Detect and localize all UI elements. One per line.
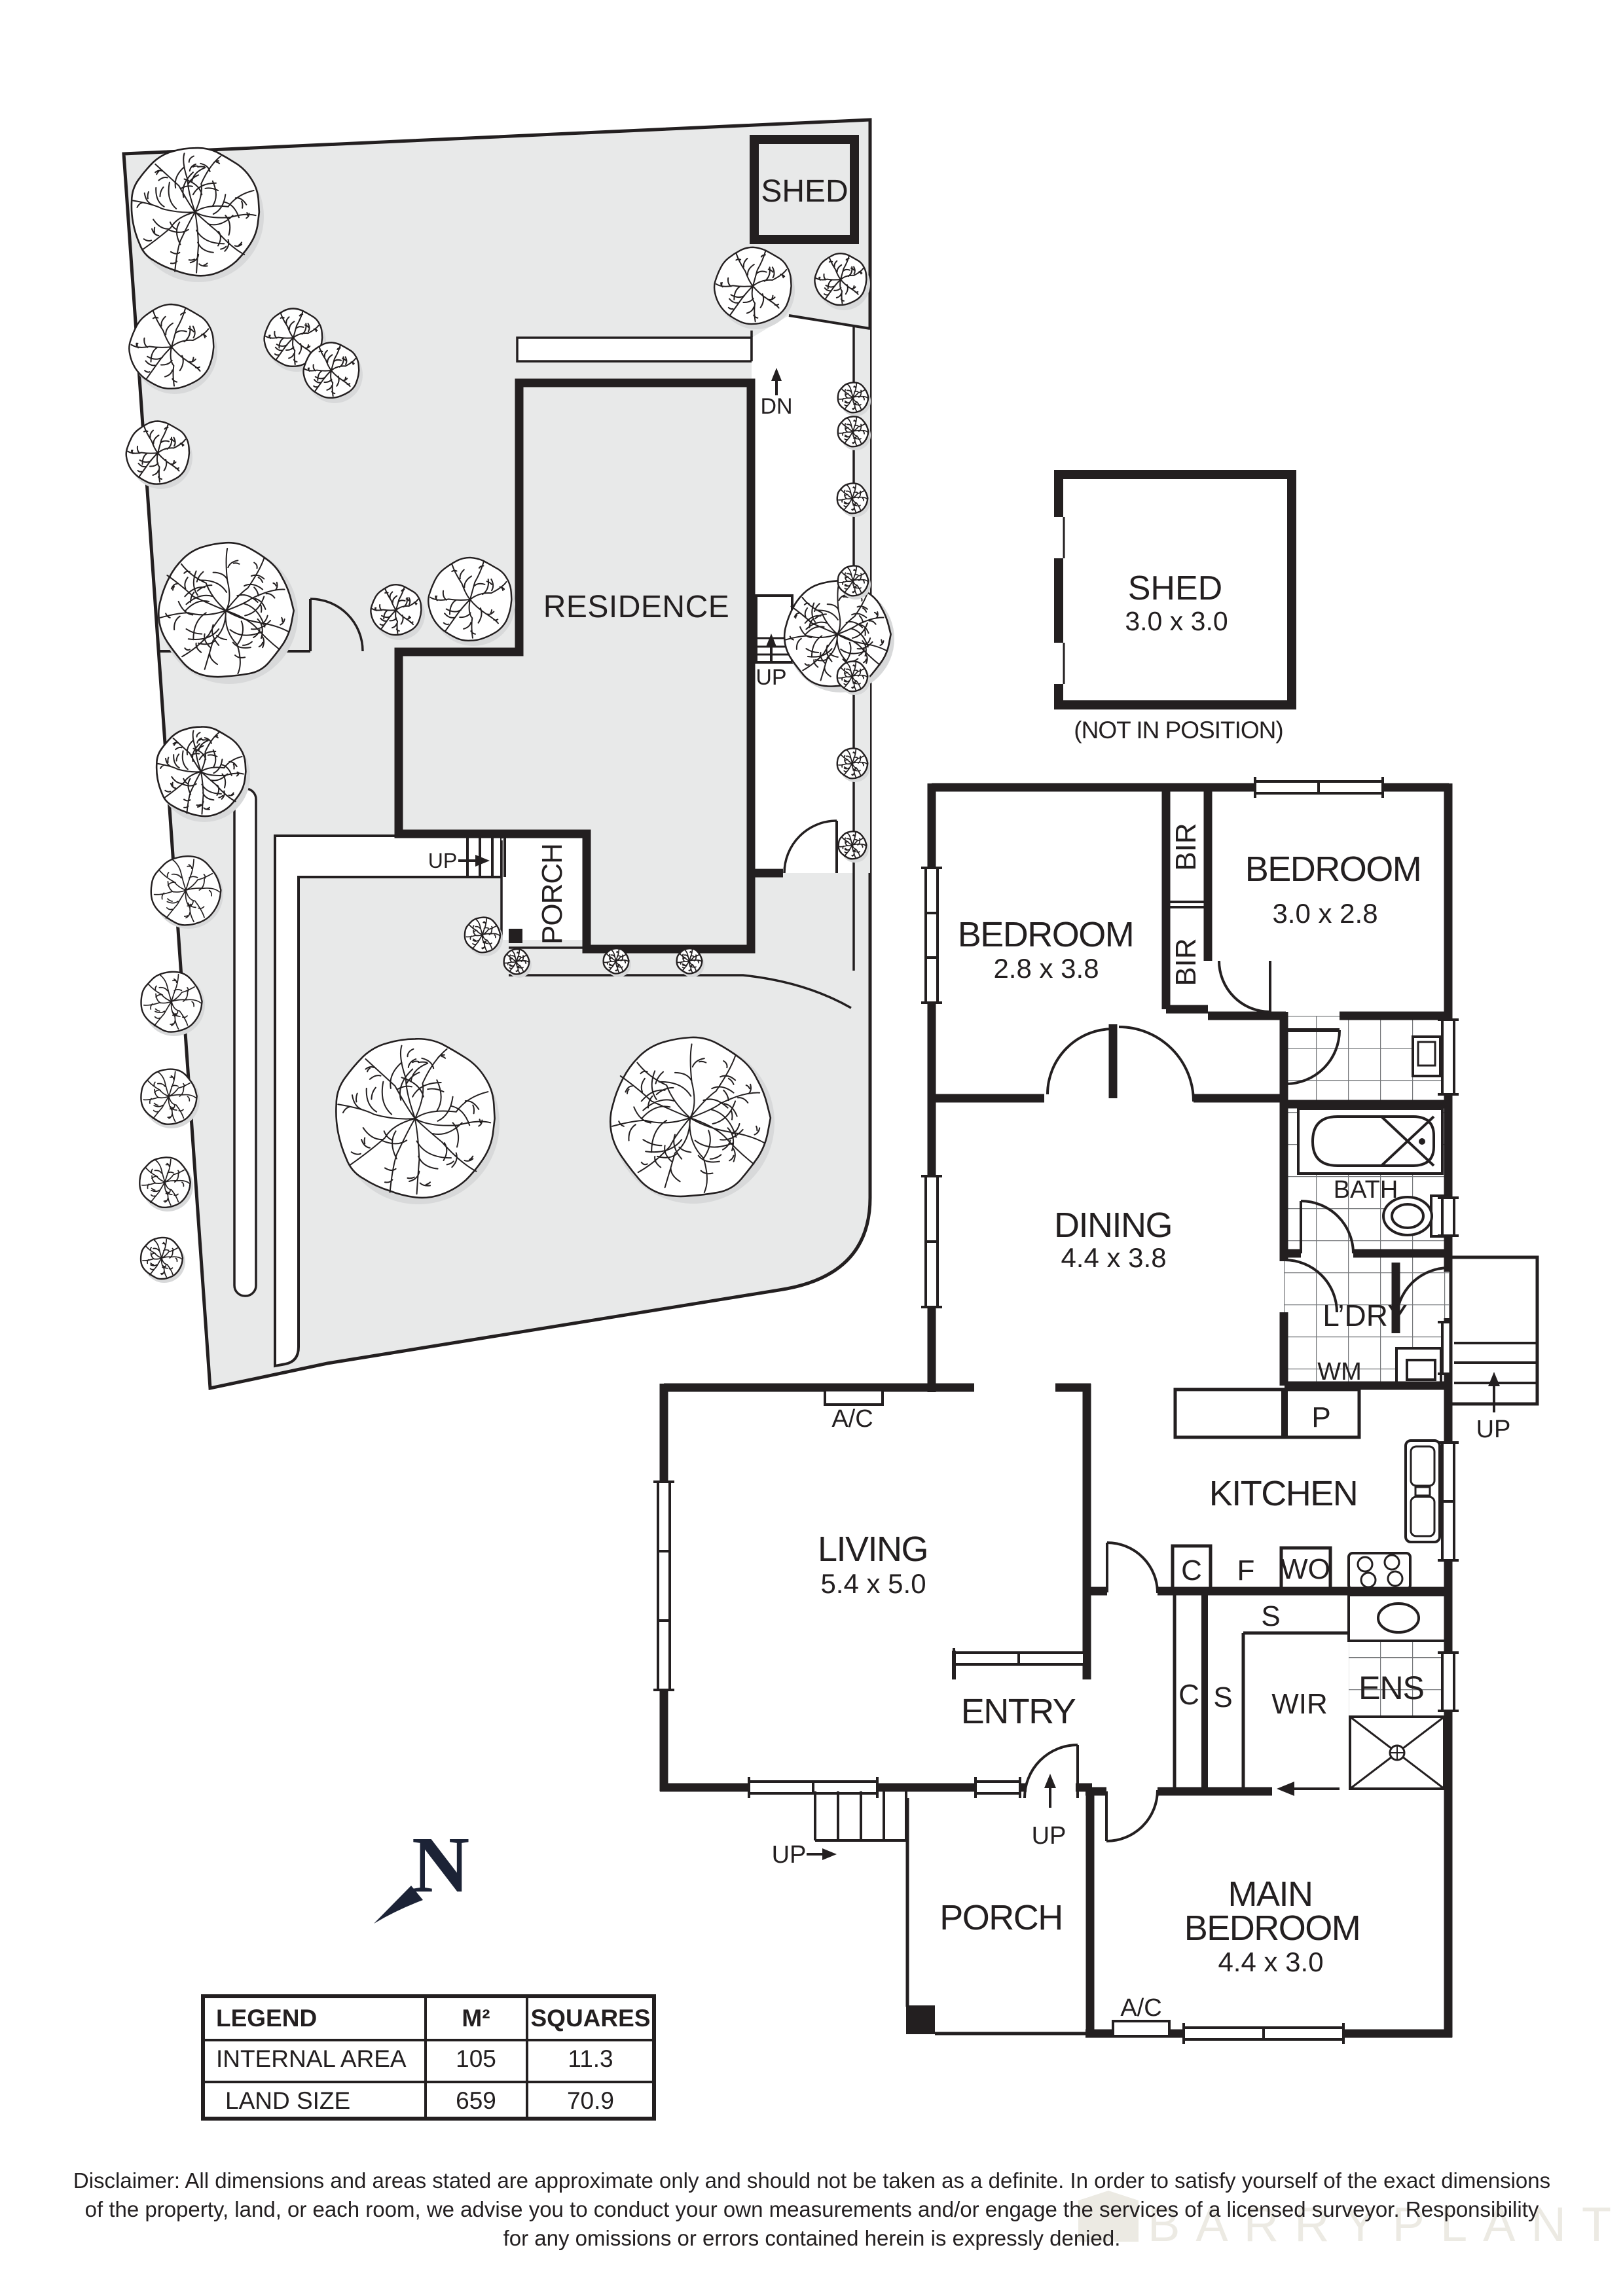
svg-text:BATH: BATH <box>1334 1176 1398 1204</box>
svg-text:P: P <box>1311 1401 1330 1433</box>
svg-text:M²: M² <box>462 2005 490 2032</box>
svg-text:BIR: BIR <box>1170 938 1202 986</box>
svg-text:UP: UP <box>428 849 457 872</box>
svg-text:A/C: A/C <box>831 1405 873 1433</box>
svg-text:3.0 x 2.8: 3.0 x 2.8 <box>1272 898 1377 929</box>
svg-text:UP: UP <box>1032 1822 1067 1850</box>
svg-text:for any omissions or errors co: for any omissions or errors contained he… <box>503 2226 1121 2250</box>
svg-text:4.4 x 3.8: 4.4 x 3.8 <box>1061 1242 1166 1273</box>
svg-text:SQUARES: SQUARES <box>531 2005 651 2032</box>
svg-text:3.0 x 3.0: 3.0 x 3.0 <box>1125 606 1228 636</box>
svg-text:N: N <box>412 1821 469 1909</box>
svg-text:L’DRY: L’DRY <box>1322 1299 1408 1333</box>
svg-text:70.9: 70.9 <box>567 2087 614 2114</box>
svg-text:105: 105 <box>456 2045 496 2072</box>
svg-text:WM: WM <box>1317 1358 1362 1386</box>
svg-text:ENS: ENS <box>1359 1670 1424 1706</box>
svg-text:RESIDENCE: RESIDENCE <box>543 590 730 624</box>
svg-text:INTERNAL AREA: INTERNAL AREA <box>216 2045 407 2072</box>
svg-text:F: F <box>1237 1554 1255 1587</box>
svg-text:BEDROOM: BEDROOM <box>1184 1909 1360 1948</box>
svg-text:MAIN: MAIN <box>1228 1874 1313 1914</box>
svg-text:LIVING: LIVING <box>818 1530 928 1569</box>
svg-text:WO: WO <box>1281 1553 1330 1585</box>
svg-text:LEGEND: LEGEND <box>216 2005 317 2032</box>
svg-text:UP: UP <box>772 1841 807 1869</box>
svg-text:BEDROOM: BEDROOM <box>1245 850 1421 889</box>
svg-text:4.4 x 3.0: 4.4 x 3.0 <box>1218 1946 1323 1977</box>
svg-text:KITCHEN: KITCHEN <box>1209 1474 1358 1513</box>
svg-text:659: 659 <box>456 2087 496 2114</box>
svg-text:S: S <box>1213 1681 1232 1713</box>
svg-text:C: C <box>1181 1554 1202 1587</box>
svg-text:UP: UP <box>1476 1416 1511 1443</box>
svg-text:SHED: SHED <box>761 174 848 209</box>
svg-text:UP: UP <box>756 665 786 690</box>
svg-text:DN: DN <box>760 394 792 419</box>
svg-text:PORCH: PORCH <box>939 1898 1063 1937</box>
svg-text:BEDROOM: BEDROOM <box>958 915 1134 954</box>
svg-text:2.8 x 3.8: 2.8 x 3.8 <box>993 953 1099 984</box>
svg-text:11.3: 11.3 <box>568 2045 613 2072</box>
svg-text:S: S <box>1261 1600 1280 1632</box>
svg-text:(NOT IN POSITION): (NOT IN POSITION) <box>1074 717 1283 744</box>
svg-text:WIR: WIR <box>1271 1688 1328 1720</box>
svg-text:5.4 x 5.0: 5.4 x 5.0 <box>820 1568 926 1599</box>
svg-text:LAND SIZE: LAND SIZE <box>225 2087 350 2114</box>
svg-text:PORCH: PORCH <box>536 844 568 944</box>
svg-text:Disclaimer: All dimensions and: Disclaimer: All dimensions and areas sta… <box>73 2168 1550 2193</box>
svg-text:of the property, land, or each: of the property, land, or each room, we … <box>85 2197 1539 2221</box>
svg-text:C: C <box>1178 1679 1199 1711</box>
svg-text:BIR: BIR <box>1170 823 1202 870</box>
svg-text:DINING: DINING <box>1054 1206 1172 1245</box>
svg-text:A/C: A/C <box>1120 1994 1161 2022</box>
svg-text:ENTRY: ENTRY <box>961 1692 1076 1731</box>
svg-text:SHED: SHED <box>1128 569 1222 607</box>
